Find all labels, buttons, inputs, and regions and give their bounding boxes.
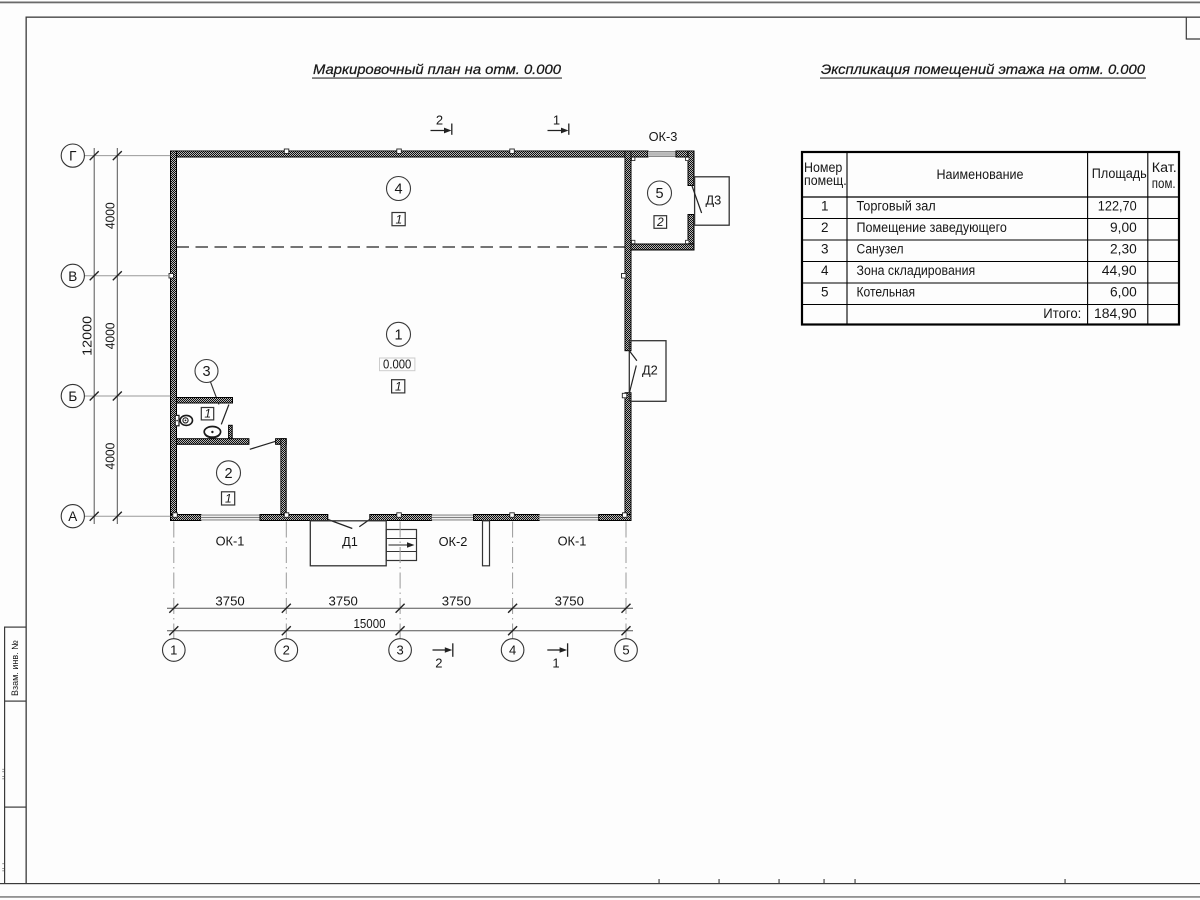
svg-text:Г: Г xyxy=(69,149,77,164)
svg-text:2: 2 xyxy=(224,466,232,482)
svg-text:122,70: 122,70 xyxy=(1098,199,1137,214)
svg-text:Площадь: Площадь xyxy=(1092,166,1147,181)
svg-text:2: 2 xyxy=(656,215,664,229)
svg-text:184,90: 184,90 xyxy=(1094,306,1137,321)
svg-text:ОК-2: ОК-2 xyxy=(439,534,468,549)
svg-text:пом.: пом. xyxy=(1152,176,1176,191)
svg-text:Взам. инв. №: Взам. инв. № xyxy=(10,640,20,696)
svg-text:Д2: Д2 xyxy=(642,363,658,378)
svg-text:15000: 15000 xyxy=(354,617,386,631)
svg-text:Д3: Д3 xyxy=(706,193,722,208)
svg-text:5: 5 xyxy=(821,285,829,300)
svg-text:3750: 3750 xyxy=(329,595,358,609)
svg-text:2: 2 xyxy=(436,113,443,128)
svg-text:2,30: 2,30 xyxy=(1110,242,1137,257)
svg-text:1: 1 xyxy=(552,656,559,671)
svg-text:Зона складирования: Зона складирования xyxy=(857,263,976,278)
svg-text:Котельная: Котельная xyxy=(857,285,916,300)
svg-text:3750: 3750 xyxy=(442,595,471,609)
svg-text:2: 2 xyxy=(283,643,290,658)
svg-text:помещ.: помещ. xyxy=(804,173,847,188)
svg-text:Экспликация помещений этажа на: Экспликация помещений этажа на отм. 0.00… xyxy=(821,62,1146,77)
svg-text:Маркировочный план на отм. 0.0: Маркировочный план на отм. 0.000 xyxy=(313,62,562,77)
svg-text:А: А xyxy=(68,509,77,524)
svg-text:9,00: 9,00 xyxy=(1110,220,1137,235)
svg-text:Кат.: Кат. xyxy=(1152,160,1177,175)
svg-text:3: 3 xyxy=(396,643,403,658)
svg-text:1: 1 xyxy=(394,327,402,343)
svg-text:2: 2 xyxy=(435,656,442,671)
svg-text:4000: 4000 xyxy=(104,323,118,350)
svg-text:Санузел: Санузел xyxy=(857,242,904,257)
svg-text:4000: 4000 xyxy=(104,202,118,229)
svg-text:5: 5 xyxy=(622,643,629,658)
svg-text:4: 4 xyxy=(509,643,516,658)
svg-text:1: 1 xyxy=(821,199,829,214)
svg-text:Торговый зал: Торговый зал xyxy=(857,199,936,214)
svg-text:4: 4 xyxy=(394,182,402,198)
svg-text:1: 1 xyxy=(395,212,402,226)
svg-text:1: 1 xyxy=(553,113,560,128)
svg-text:1: 1 xyxy=(204,407,211,421)
svg-text:3750: 3750 xyxy=(555,595,584,609)
svg-text:3: 3 xyxy=(202,364,210,380)
svg-text:44,90: 44,90 xyxy=(1102,263,1137,278)
svg-text:.. .: .. . xyxy=(0,863,6,872)
svg-text:5: 5 xyxy=(655,186,663,202)
svg-text:3750: 3750 xyxy=(215,595,244,609)
svg-text:Наименование: Наименование xyxy=(937,167,1024,182)
svg-text:.. ..: .. .. xyxy=(0,768,6,780)
svg-text:4: 4 xyxy=(821,263,829,278)
svg-text:ОК-1: ОК-1 xyxy=(216,534,245,549)
svg-text:В: В xyxy=(68,269,77,284)
svg-text:Помещение заведующего: Помещение заведующего xyxy=(857,220,1007,235)
svg-text:1: 1 xyxy=(395,380,402,394)
svg-text:1: 1 xyxy=(170,643,177,658)
svg-text:Д1: Д1 xyxy=(342,534,358,549)
svg-text:4000: 4000 xyxy=(104,443,118,470)
svg-text:12000: 12000 xyxy=(81,316,95,356)
svg-text:3: 3 xyxy=(821,242,829,257)
svg-text:2: 2 xyxy=(821,220,829,235)
svg-text:1: 1 xyxy=(225,492,232,506)
svg-text:0.000: 0.000 xyxy=(383,356,411,371)
svg-text:6,00: 6,00 xyxy=(1110,285,1137,300)
svg-text:Б: Б xyxy=(68,389,77,404)
svg-text:ОК-1: ОК-1 xyxy=(558,534,587,549)
svg-text:ОК-3: ОК-3 xyxy=(649,129,678,144)
svg-text:Итого:: Итого: xyxy=(1043,306,1081,321)
